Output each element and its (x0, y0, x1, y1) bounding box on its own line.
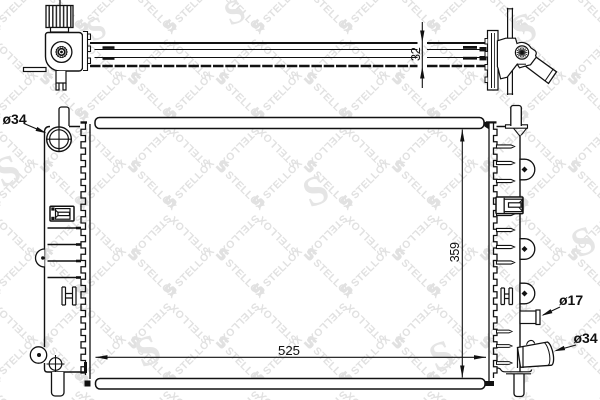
svg-text:ø17: ø17 (559, 292, 583, 308)
svg-text:359: 359 (448, 242, 462, 262)
svg-text:525: 525 (278, 343, 300, 358)
svg-text:32: 32 (408, 47, 423, 61)
svg-text:ø34: ø34 (3, 111, 27, 127)
svg-text:ø34: ø34 (574, 330, 598, 346)
